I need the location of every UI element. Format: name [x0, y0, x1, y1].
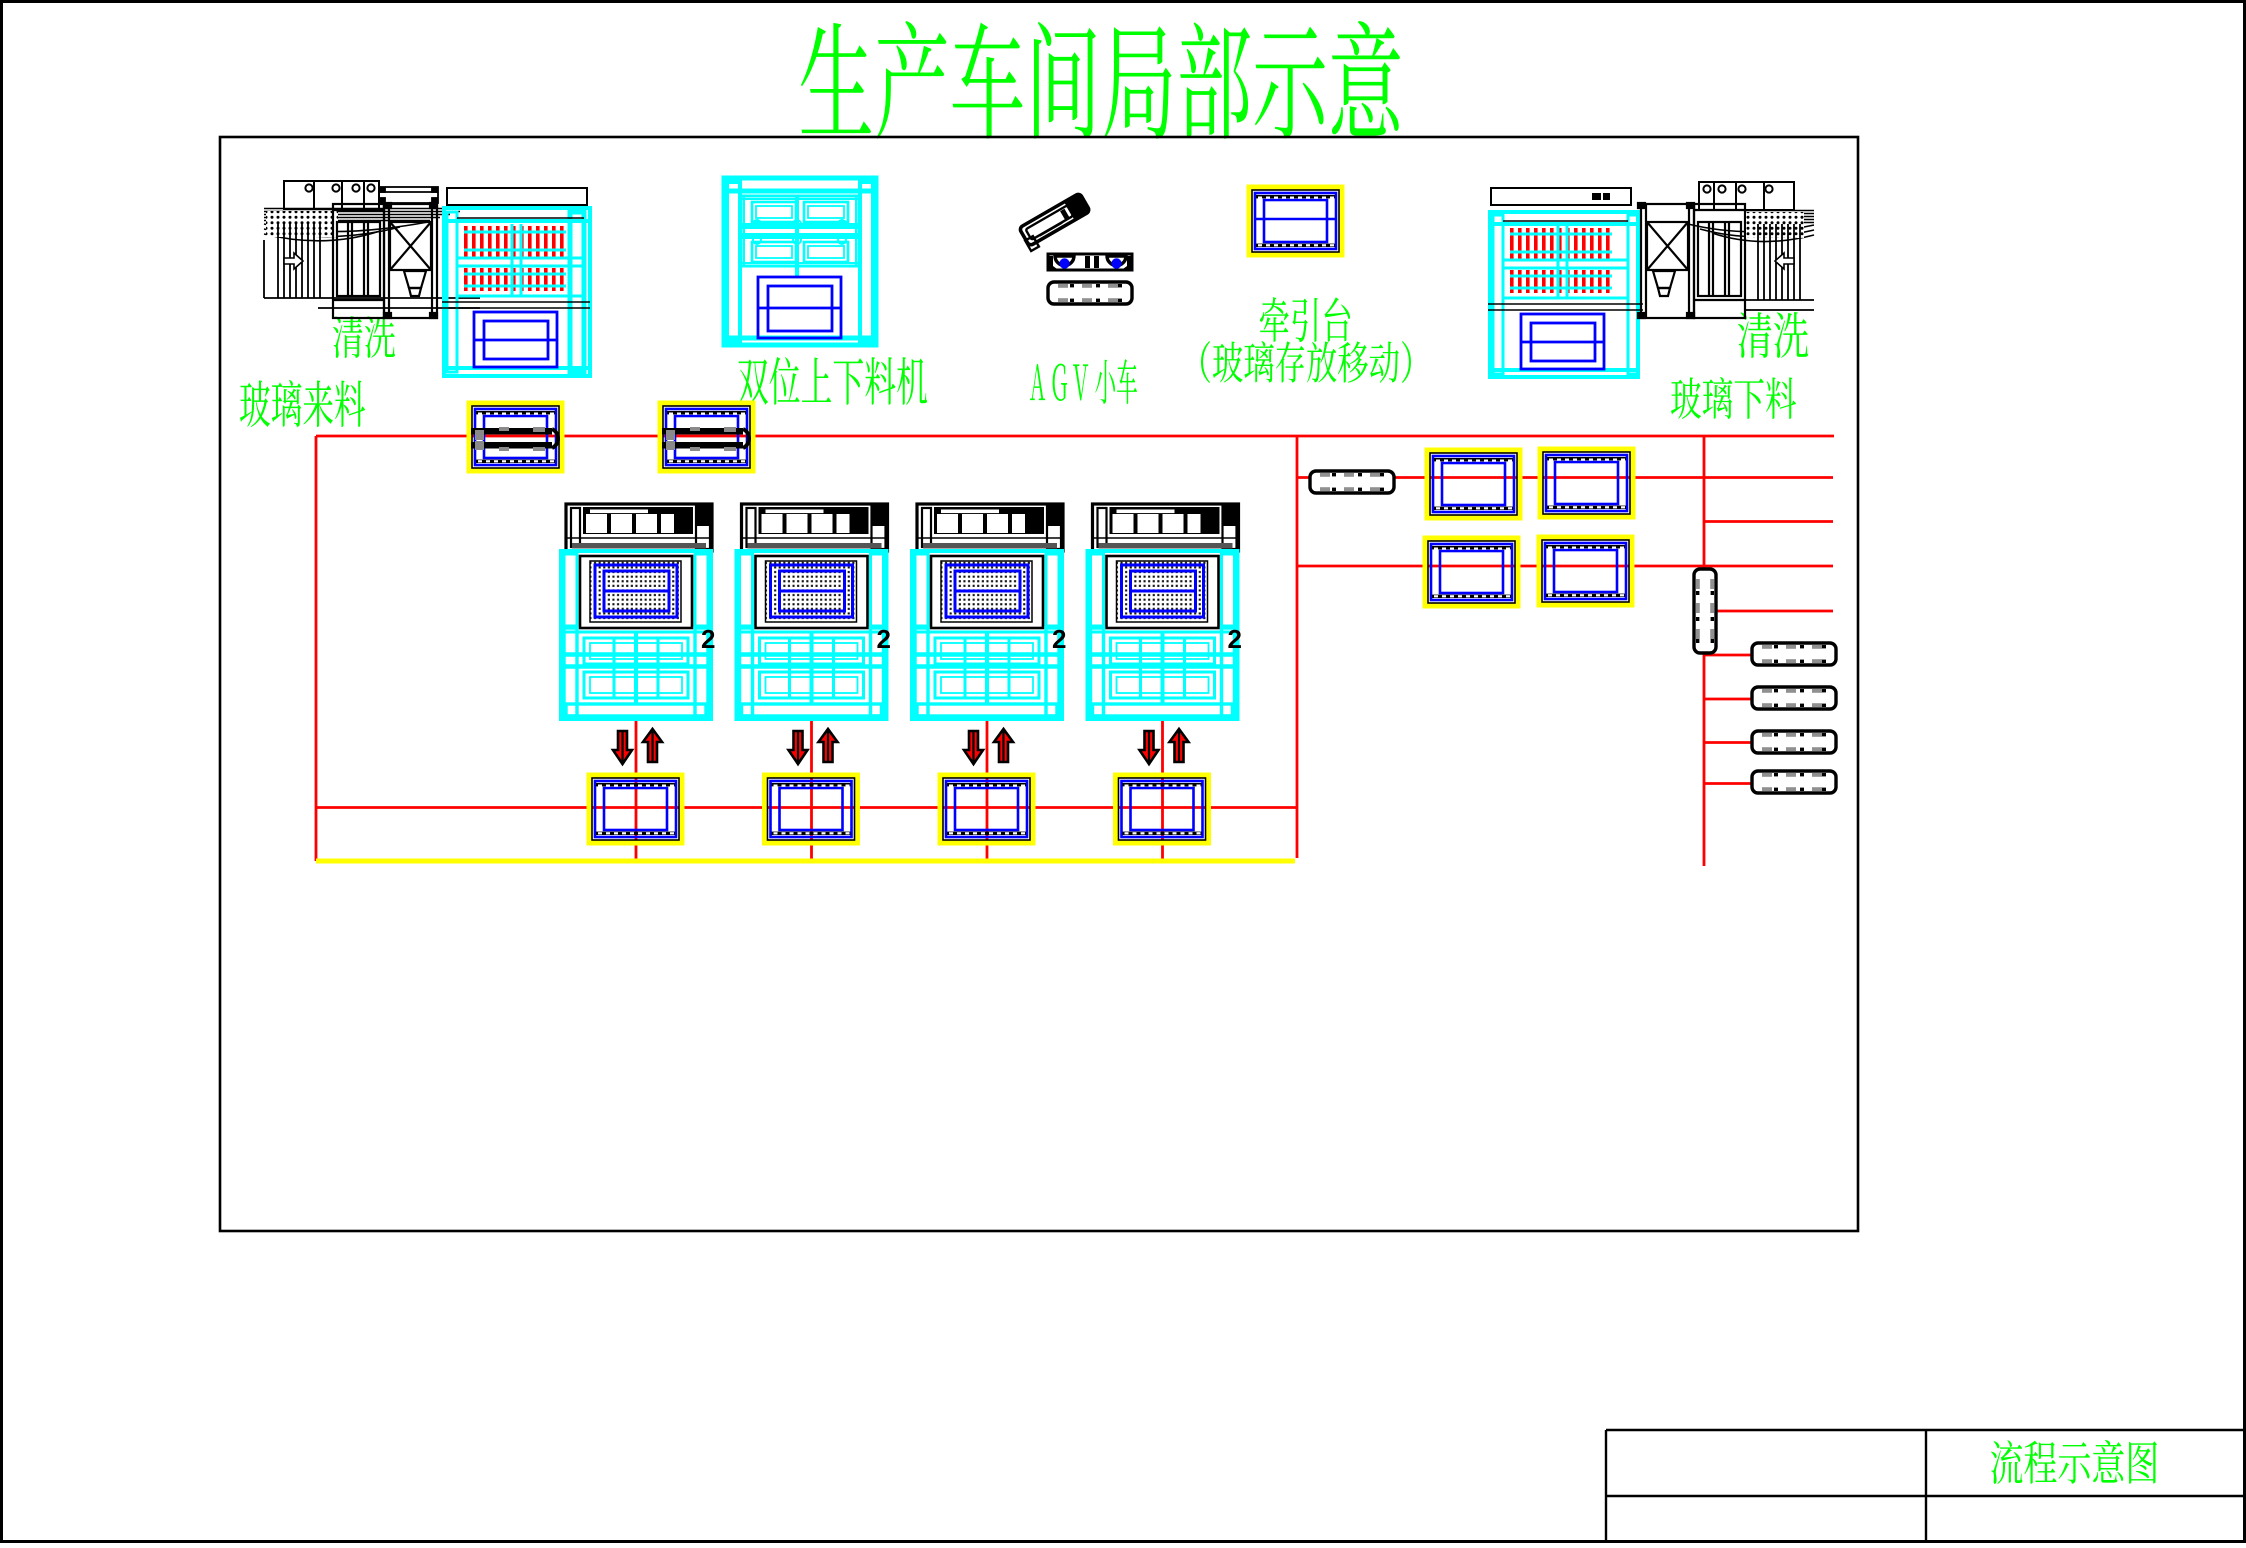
- svg-text:2: 2: [701, 624, 715, 654]
- svg-text:2: 2: [877, 624, 891, 654]
- svg-text:2: 2: [1228, 624, 1242, 654]
- svg-text:2: 2: [1052, 624, 1066, 654]
